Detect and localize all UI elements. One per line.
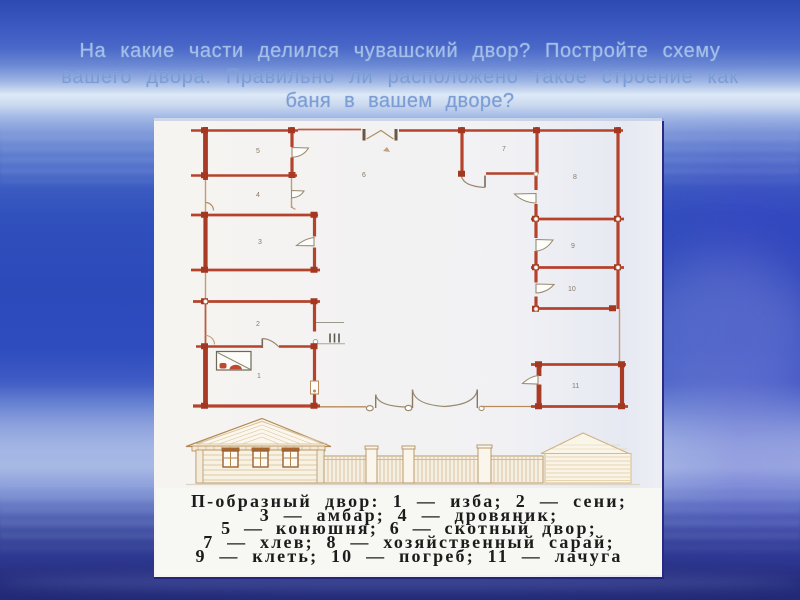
svg-text:1: 1: [257, 373, 261, 380]
svg-text:4: 4: [256, 192, 260, 199]
svg-text:7: 7: [502, 146, 506, 153]
svg-text:10: 10: [568, 286, 576, 293]
svg-text:9: 9: [571, 243, 575, 250]
svg-text:8: 8: [573, 174, 577, 181]
svg-text:3: 3: [258, 239, 262, 246]
svg-text:11: 11: [572, 383, 579, 390]
svg-text:2: 2: [256, 321, 260, 328]
svg-text:5: 5: [256, 148, 260, 155]
svg-text:6: 6: [362, 172, 366, 179]
